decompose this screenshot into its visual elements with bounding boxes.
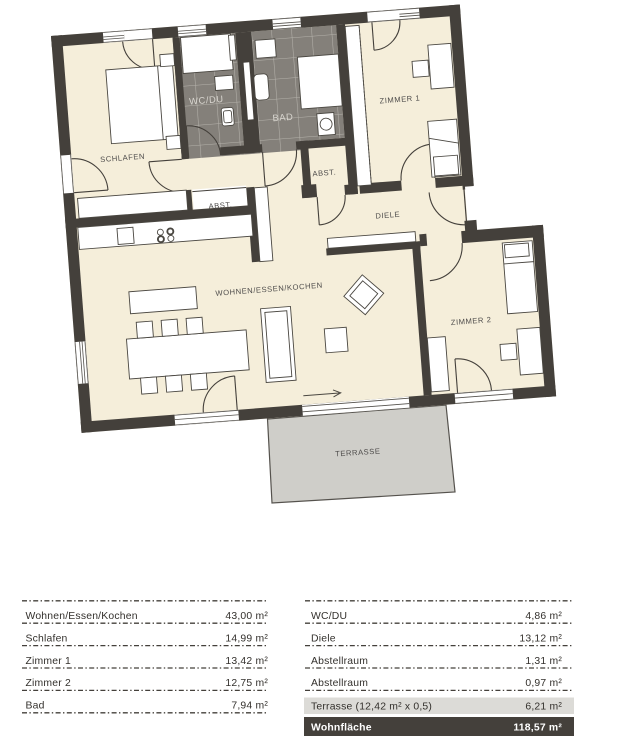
svg-text:ABST.: ABST. bbox=[208, 200, 232, 211]
svg-text:14,99 m²: 14,99 m² bbox=[225, 633, 268, 644]
svg-text:Zimmer 2: Zimmer 2 bbox=[26, 678, 71, 689]
svg-text:Bad: Bad bbox=[26, 701, 45, 712]
svg-text:DIELE: DIELE bbox=[375, 210, 400, 221]
svg-text:4,86 m²: 4,86 m² bbox=[525, 611, 562, 622]
svg-text:Abstellraum: Abstellraum bbox=[311, 678, 368, 689]
svg-text:12,75 m²: 12,75 m² bbox=[225, 678, 268, 689]
svg-text:13,12 m²: 13,12 m² bbox=[519, 633, 562, 644]
svg-text:Schlafen: Schlafen bbox=[26, 633, 68, 644]
svg-text:BAD: BAD bbox=[272, 111, 294, 124]
svg-text:Wohnen/Essen/Kochen: Wohnen/Essen/Kochen bbox=[26, 611, 138, 622]
svg-text:13,42 m²: 13,42 m² bbox=[225, 656, 268, 667]
svg-text:Diele: Diele bbox=[311, 633, 336, 644]
svg-text:43,00 m²: 43,00 m² bbox=[225, 611, 268, 622]
svg-text:Terrasse (12,42 m² x 0,5): Terrasse (12,42 m² x 0,5) bbox=[311, 702, 432, 713]
svg-text:ABST.: ABST. bbox=[312, 168, 336, 179]
svg-text:WC/DU: WC/DU bbox=[311, 611, 347, 622]
svg-text:1,31 m²: 1,31 m² bbox=[525, 656, 562, 667]
svg-text:0,97 m²: 0,97 m² bbox=[525, 678, 562, 689]
svg-text:Abstellraum: Abstellraum bbox=[311, 656, 368, 667]
svg-text:118,57 m²: 118,57 m² bbox=[513, 723, 562, 734]
svg-text:Zimmer 1: Zimmer 1 bbox=[26, 656, 71, 667]
svg-text:7,94 m²: 7,94 m² bbox=[231, 701, 268, 712]
svg-text:6,21 m²: 6,21 m² bbox=[525, 702, 562, 713]
svg-text:Wohnfläche: Wohnfläche bbox=[311, 723, 372, 734]
